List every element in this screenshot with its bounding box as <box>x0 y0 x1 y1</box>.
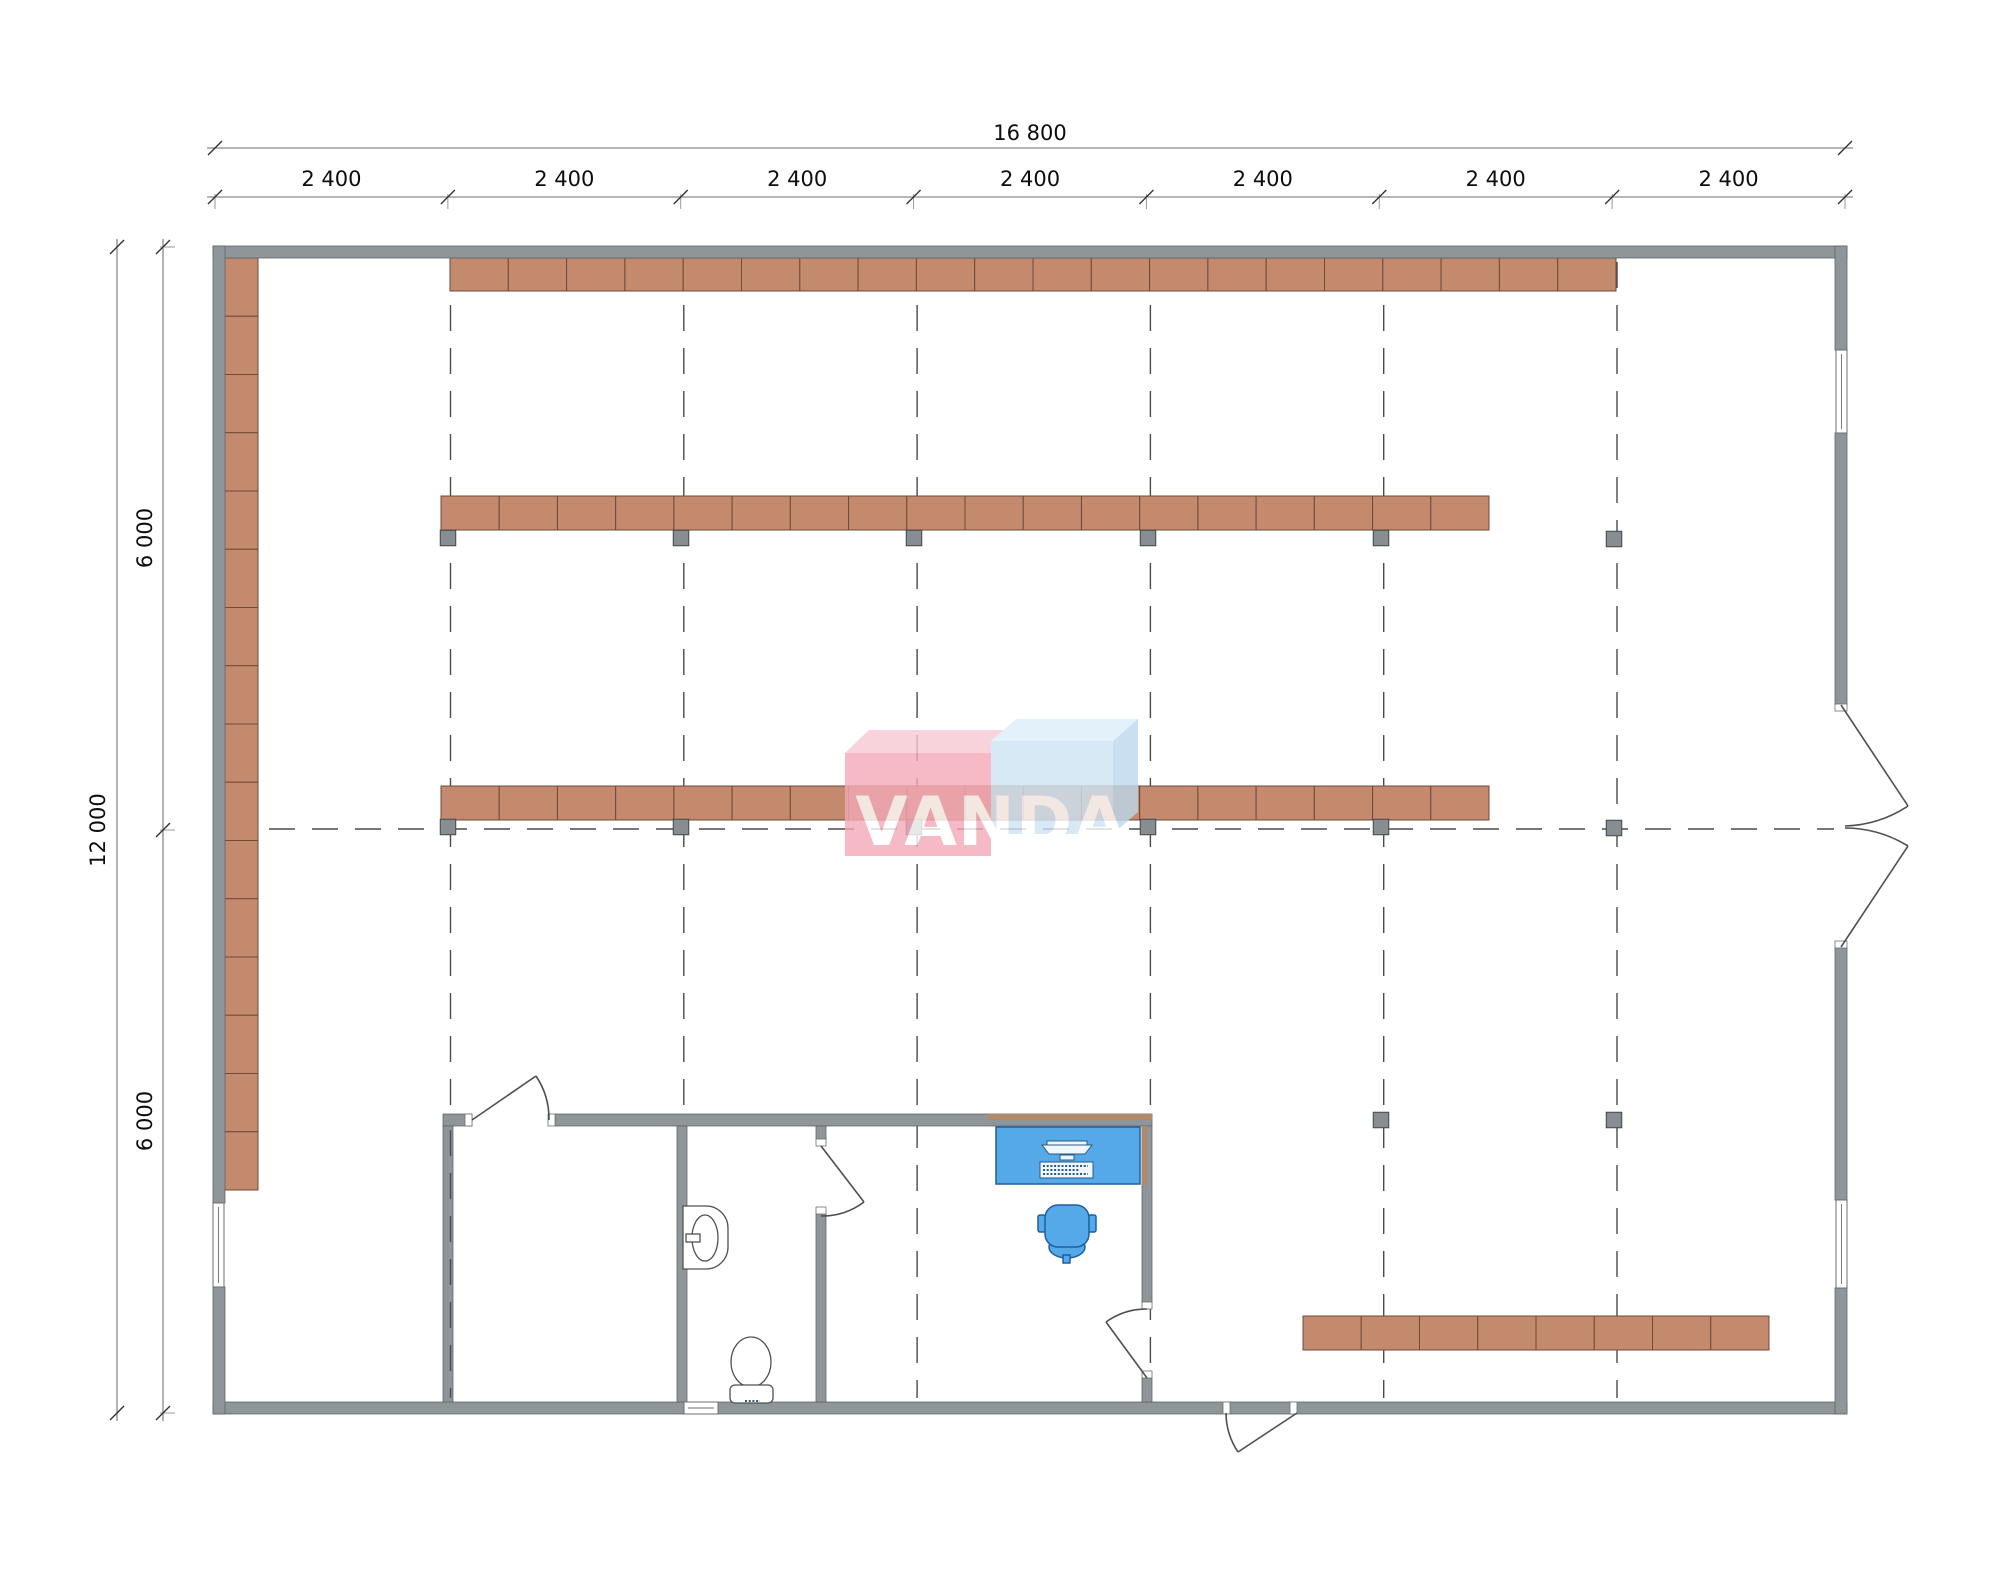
column <box>1373 530 1389 546</box>
floor-plan-canvas: 2 4002 4002 4002 4002 4002 4002 400 16 8… <box>0 0 2000 1574</box>
rack-segment <box>1256 496 1314 530</box>
vent-south <box>684 1402 718 1414</box>
rack-segment <box>224 608 258 666</box>
dim-bay-label: 2 400 <box>1466 167 1526 191</box>
rack-segment <box>1361 1316 1419 1350</box>
rack-segment <box>907 496 965 530</box>
bay-dimension-labels: 2 4002 4002 4002 4002 4002 4002 400 <box>301 167 1758 191</box>
rack-segment <box>1150 258 1208 291</box>
rack-segment <box>800 258 858 291</box>
vanda-watermark: VANDA <box>845 719 1138 862</box>
wc-east-wall <box>816 1214 826 1402</box>
rack-segment <box>1478 1316 1536 1350</box>
dim-overall-height: 12 000 <box>86 793 110 866</box>
rack-segment <box>557 496 615 530</box>
rack-segment <box>975 258 1033 291</box>
column <box>1140 819 1156 835</box>
column <box>1373 1112 1389 1128</box>
rack-segment <box>965 496 1023 530</box>
logo-pink-box-top <box>845 730 1014 753</box>
rack-segment <box>224 957 258 1015</box>
door-room1 <box>465 1076 555 1126</box>
rack-segment <box>1140 496 1198 530</box>
rack-segment <box>625 258 683 291</box>
dim-bay-label: 2 400 <box>767 167 827 191</box>
rack-segment <box>1325 258 1383 291</box>
column <box>440 819 456 835</box>
rack-segment <box>499 496 557 530</box>
column <box>1373 819 1389 835</box>
column <box>673 819 689 835</box>
rack-segment <box>1711 1316 1769 1350</box>
rack-segment <box>1033 258 1091 291</box>
dim-half-height-top: 6 000 <box>133 508 157 568</box>
rack-segment <box>1198 786 1256 820</box>
rack-segment <box>1431 786 1489 820</box>
rack-segment <box>1383 258 1441 291</box>
rack-segment <box>790 786 848 820</box>
rack-segment <box>1420 1316 1478 1350</box>
rack-segment <box>224 1074 258 1132</box>
rack-segment <box>441 496 499 530</box>
rack-segment <box>1023 496 1081 530</box>
rack-segment <box>790 496 848 530</box>
office-furniture <box>996 1127 1140 1263</box>
wall-north <box>213 246 1847 258</box>
rack-segment <box>224 258 258 316</box>
rack-segment <box>508 258 566 291</box>
rack-segment <box>849 496 907 530</box>
rack-segment <box>916 258 974 291</box>
rack-segment <box>674 496 732 530</box>
rack-segment <box>683 258 741 291</box>
wc-east-wall-stub <box>816 1126 826 1140</box>
rack-segment <box>674 786 732 820</box>
column <box>1606 1112 1622 1128</box>
rack-segment <box>858 258 916 291</box>
wall-west-upper <box>213 246 225 1203</box>
wall-east-4 <box>1835 1288 1847 1414</box>
window-east-lower <box>1836 1200 1847 1288</box>
rack-segment <box>1081 496 1139 530</box>
rack-segment <box>557 786 615 820</box>
rack-segment <box>441 786 499 820</box>
room1-west-wall <box>443 1126 453 1402</box>
logo-text: VANDA <box>855 783 1127 862</box>
rack-segment <box>224 375 258 433</box>
rack-segment <box>1314 786 1372 820</box>
column <box>1140 530 1156 546</box>
column <box>906 530 922 546</box>
rack-segment <box>1431 496 1489 530</box>
door-office <box>1106 1302 1152 1378</box>
rack-segment <box>1266 258 1324 291</box>
rack-segment <box>1499 258 1557 291</box>
rack-segment <box>616 496 674 530</box>
dim-bay-label: 2 400 <box>1233 167 1293 191</box>
rack-segment <box>1594 1316 1652 1350</box>
double-door-east <box>1835 704 1908 948</box>
rack-segment <box>1140 786 1198 820</box>
wall-east-1 <box>1835 246 1847 350</box>
wall-east-2 <box>1835 433 1847 705</box>
rack-segment <box>616 786 674 820</box>
window-east-upper <box>1836 350 1847 433</box>
rack-segment <box>224 549 258 607</box>
rack-segment <box>742 258 800 291</box>
rack-segment <box>224 433 258 491</box>
rack-segment <box>224 899 258 957</box>
floor-plan-page: 2 4002 4002 4002 4002 4002 4002 400 16 8… <box>0 0 2000 1574</box>
column <box>1606 820 1622 836</box>
rack-segment <box>567 258 625 291</box>
wall-west-lower <box>213 1287 225 1414</box>
dim-half-height-bottom: 6 000 <box>133 1091 157 1151</box>
dim-bay-label: 2 400 <box>1000 167 1060 191</box>
rack-segment <box>1256 786 1314 820</box>
dim-overall-width: 16 800 <box>993 121 1066 145</box>
rack-segment <box>224 666 258 724</box>
rack-segment <box>224 316 258 374</box>
office-wall-finish-top <box>988 1114 1152 1120</box>
rack-segment <box>1653 1316 1711 1350</box>
rack-segment <box>1198 496 1256 530</box>
rack-segment <box>1208 258 1266 291</box>
rack-segment <box>499 786 557 820</box>
logo-blue-box-top <box>991 719 1138 741</box>
wall-east-3 <box>1835 947 1847 1200</box>
door-wc <box>816 1139 864 1216</box>
rack-segment <box>1303 1316 1361 1350</box>
column <box>1606 531 1622 547</box>
dim-bay-label: 2 400 <box>534 167 594 191</box>
office-wall-finish-side <box>1142 1126 1147 1185</box>
rack-segment <box>1441 258 1499 291</box>
sink <box>683 1206 728 1269</box>
rack-segment <box>224 1132 258 1190</box>
rack-segment <box>224 1015 258 1073</box>
rack-segment <box>224 841 258 899</box>
rack-segment <box>1558 258 1616 291</box>
rack-segment <box>450 258 508 291</box>
window-west <box>213 1203 224 1287</box>
rack-segment <box>732 496 790 530</box>
wall-south <box>213 1402 1847 1414</box>
rack-segment <box>732 786 790 820</box>
keyboard <box>1040 1162 1093 1178</box>
rack-segment <box>224 491 258 549</box>
toilet <box>730 1337 773 1403</box>
rack-segment <box>1373 496 1431 530</box>
column <box>440 530 456 546</box>
rack-segment <box>1373 786 1431 820</box>
office-east-wall-stub <box>1142 1378 1152 1402</box>
rack-segment <box>1314 496 1372 530</box>
column <box>673 530 689 546</box>
rack-segment <box>224 782 258 840</box>
bathroom-fixtures <box>683 1206 773 1403</box>
rack-segment <box>1536 1316 1594 1350</box>
rack-segment <box>224 724 258 782</box>
dim-bay-label: 2 400 <box>301 167 361 191</box>
dim-bay-label: 2 400 <box>1699 167 1759 191</box>
office-chair <box>1038 1205 1096 1263</box>
rack-segment <box>1091 258 1149 291</box>
